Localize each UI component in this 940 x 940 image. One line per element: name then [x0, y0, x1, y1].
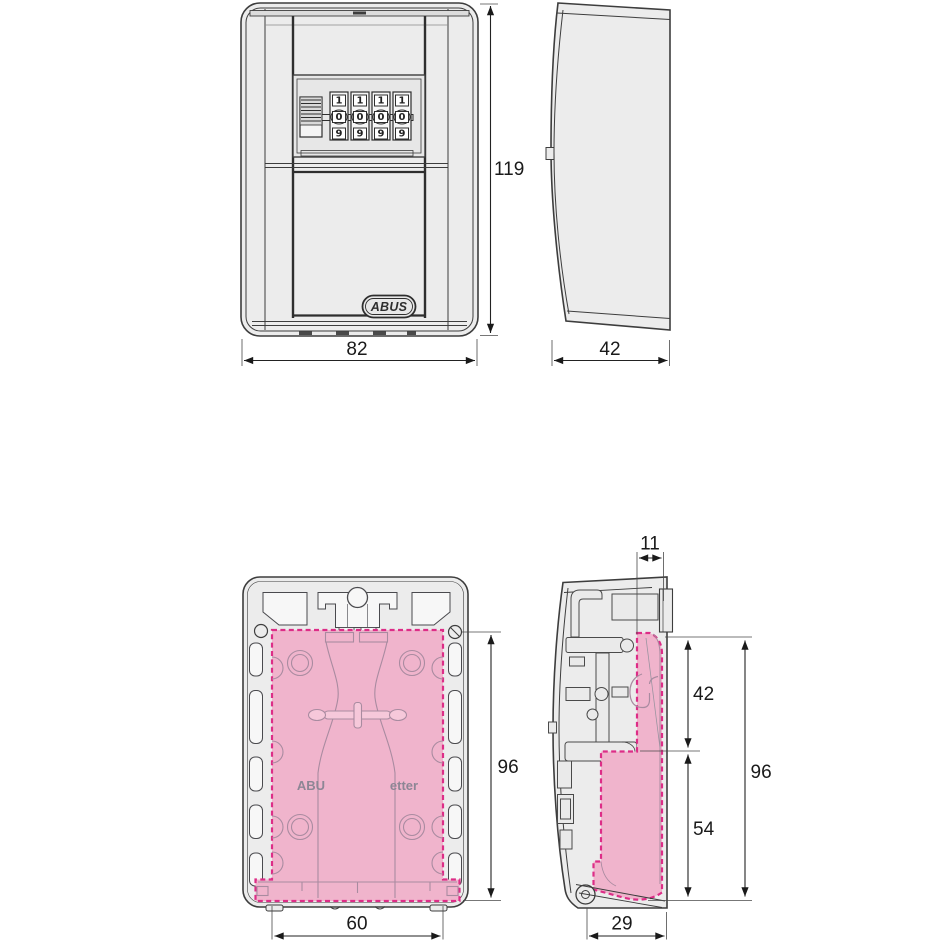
dial-digit: 0 — [357, 112, 364, 123]
backplate-tab — [660, 589, 673, 632]
combination-panel: 1 0 9 1 0 9 1 0 9 — [293, 75, 425, 157]
section-total-height-dimension: 96 — [751, 762, 772, 783]
section-bottom-depth-dimension: 29 — [611, 914, 632, 935]
latch-housing — [612, 594, 658, 620]
reset-slider — [300, 97, 322, 137]
dial-digit: 1 — [357, 96, 364, 107]
combination-dial-2: 1 0 9 — [351, 92, 369, 140]
latch-slot — [353, 12, 366, 15]
dial-digit: 0 — [399, 112, 406, 123]
side-depth-dimension: 42 — [599, 339, 620, 360]
combination-dial-4: 1 0 9 — [393, 92, 411, 140]
hanger-hole — [348, 588, 368, 608]
screw-hole-left — [255, 625, 268, 638]
dial-digit: 1 — [336, 96, 343, 107]
dial-digit: 9 — [378, 129, 385, 140]
front-view: 1 0 9 1 0 9 1 0 9 — [241, 3, 524, 366]
dial-digit: 9 — [336, 129, 343, 140]
dial-digit: 0 — [378, 112, 385, 123]
front-body — [241, 3, 478, 336]
molded-text-left: ABU — [297, 778, 325, 793]
section-top-depth-dimension: 11 — [640, 534, 660, 555]
back-interior-view: ABU etter 96 60 — [243, 577, 519, 940]
dial-digit: 9 — [357, 129, 364, 140]
side-body — [551, 3, 670, 330]
dial-digit: 0 — [336, 112, 343, 123]
side-view: 42 — [546, 3, 670, 366]
section-lower-height-dimension: 54 — [693, 819, 715, 840]
dial-digit: 1 — [378, 96, 385, 107]
abus-logo: ABUS — [363, 296, 416, 318]
back-height-dimension: 96 — [498, 757, 519, 778]
combination-dial-3: 1 0 9 — [372, 92, 390, 140]
section-upper-height-dimension: 42 — [693, 684, 714, 705]
front-height-dimension: 119 — [494, 159, 524, 180]
back-width-dimension: 60 — [346, 914, 367, 935]
dial-digit: 1 — [399, 96, 406, 107]
cross-section-view: 11 42 54 96 29 — [549, 534, 772, 940]
usable-area-highlight — [256, 630, 460, 901]
side-latch-notch — [546, 148, 554, 160]
abus-logo-text: ABUS — [370, 300, 408, 314]
molded-text-right: etter — [390, 778, 418, 793]
combination-dial-1: 1 0 9 — [330, 92, 348, 140]
front-width-dimension: 82 — [346, 339, 367, 360]
screw-right — [449, 626, 462, 639]
technical-drawing-canvas: 1 0 9 1 0 9 1 0 9 — [0, 0, 940, 940]
drawing-svg: 1 0 9 1 0 9 1 0 9 — [0, 0, 940, 940]
dial-digit: 9 — [399, 129, 406, 140]
